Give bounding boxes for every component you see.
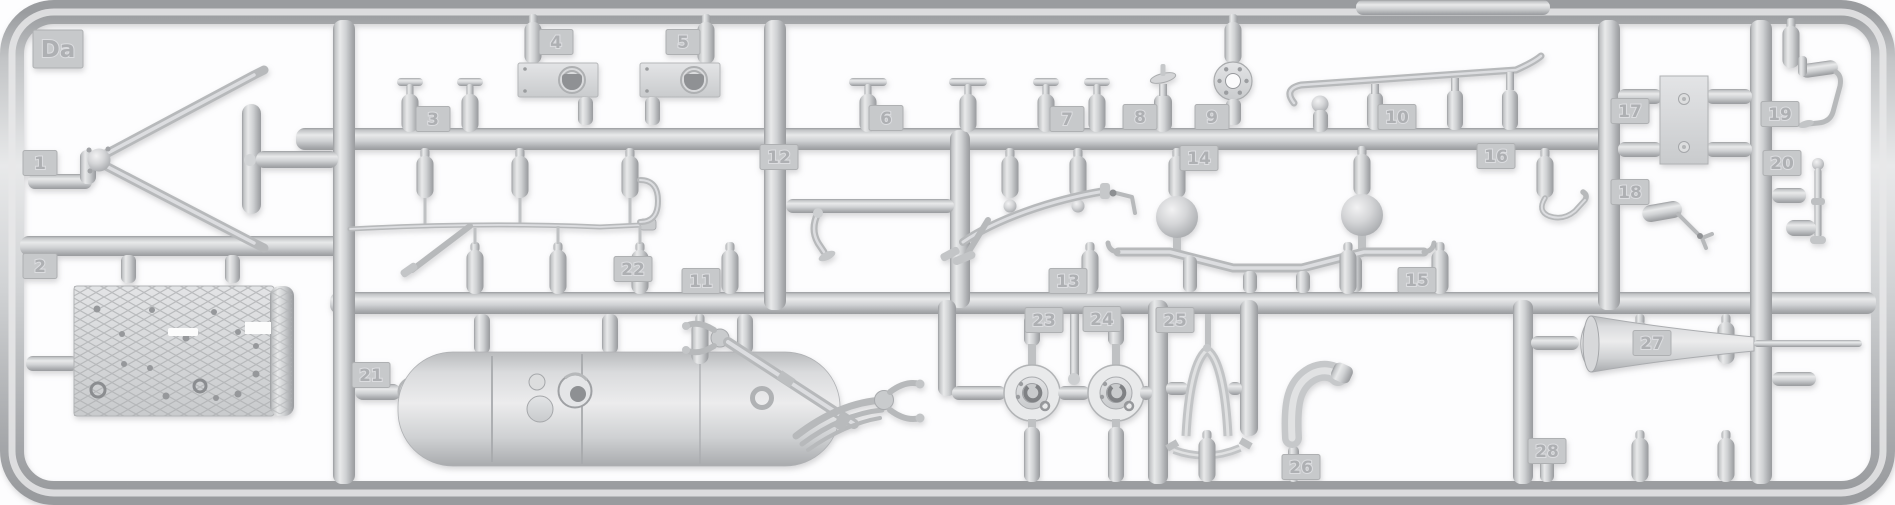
part-tag-2: 2	[23, 254, 57, 279]
svg-text:18: 18	[1618, 183, 1642, 203]
svg-text:8: 8	[1134, 108, 1146, 128]
part-16-curved-hook	[1537, 148, 1587, 218]
part-tag-8: 8	[1123, 105, 1157, 130]
part-21-fuel-tank	[355, 314, 840, 466]
svg-text:14: 14	[1187, 149, 1211, 169]
part-25-a-frame	[1165, 314, 1252, 482]
sprue-code-tag: Da	[33, 30, 83, 68]
part-18-linkage	[1641, 200, 1712, 248]
part-tag-10: 10	[1378, 105, 1416, 130]
svg-text:22: 22	[621, 260, 645, 280]
part-2-floor-plate	[26, 255, 294, 416]
part-tag-7: 7	[1050, 107, 1084, 132]
part-tag-13: 13	[1049, 269, 1087, 294]
part-tag-27: 27	[1633, 331, 1671, 356]
svg-text:6: 6	[880, 109, 892, 129]
sprue-photo: Da 1 2 3 4 5 6 7 8 9 10 11 12 13 14 15 1…	[0, 0, 1895, 505]
part-tag-1: 1	[23, 151, 57, 176]
svg-text:17: 17	[1618, 102, 1642, 122]
part-tag-26: 26	[1282, 455, 1320, 480]
part-tag-20: 20	[1763, 151, 1801, 176]
svg-text:12: 12	[767, 148, 791, 168]
part-12-elbow-pipe	[640, 180, 954, 263]
svg-text:3: 3	[427, 110, 439, 130]
svg-text:19: 19	[1768, 105, 1792, 125]
part-tag-15: 15	[1398, 268, 1436, 293]
part-tag-22: 22	[614, 257, 652, 282]
part-tag-12: 12	[760, 145, 798, 170]
part-tag-18: 18	[1611, 180, 1649, 205]
svg-text:25: 25	[1163, 311, 1187, 331]
part-tag-23: 23	[1025, 308, 1063, 333]
svg-text:20: 20	[1770, 154, 1794, 174]
part-tag-28: 28	[1528, 439, 1566, 464]
svg-text:15: 15	[1405, 271, 1429, 291]
part-23-brake-drum	[952, 314, 1060, 482]
svg-text:7: 7	[1061, 110, 1073, 130]
svg-text:21: 21	[359, 366, 383, 386]
svg-text:13: 13	[1056, 272, 1080, 292]
part-tag-19: 19	[1761, 102, 1799, 127]
svg-text:24: 24	[1090, 310, 1114, 330]
svg-text:10: 10	[1385, 108, 1409, 128]
part-tag-17: 17	[1611, 99, 1649, 124]
part-tag-5: 5	[666, 30, 700, 55]
part-tag-6: 6	[869, 106, 903, 131]
svg-text:23: 23	[1032, 311, 1056, 331]
part-tag-16: 16	[1477, 144, 1515, 169]
svg-text:5: 5	[677, 33, 689, 53]
part-11-tie-rod	[350, 148, 739, 294]
screenshot-root: Da 1 2 3 4 5 6 7 8 9 10 11 12 13 14 15 1…	[0, 0, 1895, 505]
part-tag-14: 14	[1180, 146, 1218, 171]
part-tag-24: 24	[1083, 307, 1121, 332]
svg-text:16: 16	[1484, 147, 1508, 167]
part-tag-4: 4	[539, 30, 573, 55]
svg-text:2: 2	[34, 257, 46, 277]
part-tag-3: 3	[416, 107, 450, 132]
part-tag-25: 25	[1156, 308, 1194, 333]
svg-text:9: 9	[1206, 108, 1218, 128]
part-tag-9: 9	[1195, 105, 1229, 130]
part-24-brake-drum	[1058, 314, 1152, 482]
svg-text:26: 26	[1289, 458, 1313, 478]
svg-text:28: 28	[1535, 442, 1559, 462]
sprue-hanger-tab	[1356, 0, 1550, 15]
svg-text:4: 4	[550, 33, 562, 53]
part-tag-21: 21	[352, 363, 390, 388]
svg-text:27: 27	[1640, 334, 1664, 354]
part-14-ball-stabilizer	[1108, 146, 1434, 293]
svg-text:1: 1	[34, 154, 46, 174]
svg-text:Da: Da	[41, 37, 76, 63]
part-27-exhaust-horn	[1531, 316, 1862, 372]
part-tag-11: 11	[682, 269, 720, 294]
part-1-drawbar-frame	[28, 70, 338, 248]
svg-text:11: 11	[689, 272, 713, 292]
